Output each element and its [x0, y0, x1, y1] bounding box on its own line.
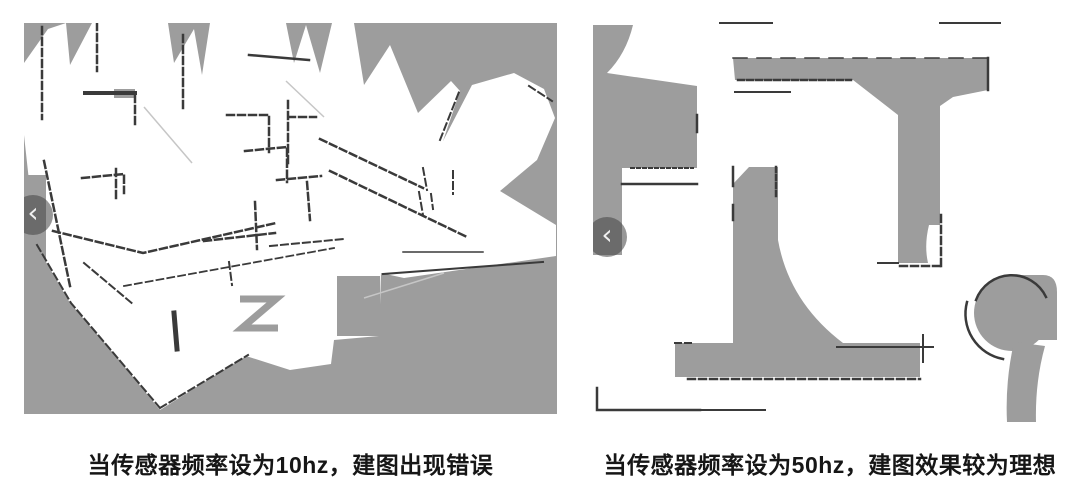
figure-caption-50hz: 当传感器频率设为50hz，建图效果较为理想: [593, 446, 1067, 480]
figure-map-50hz: ‹: [593, 13, 1067, 430]
chevron-left-icon: ‹: [601, 217, 612, 253]
occupancy-grid-map-10hz-image: [24, 23, 557, 414]
article-figure-strip: ‹: [0, 0, 1080, 500]
figure-map-10hz: ‹: [24, 23, 557, 414]
chevron-left-icon: ‹: [27, 195, 38, 231]
figure-caption-10hz: 当传感器频率设为10hz，建图出现错误: [24, 446, 557, 480]
occupancy-grid-map-50hz-image: [593, 13, 1067, 430]
